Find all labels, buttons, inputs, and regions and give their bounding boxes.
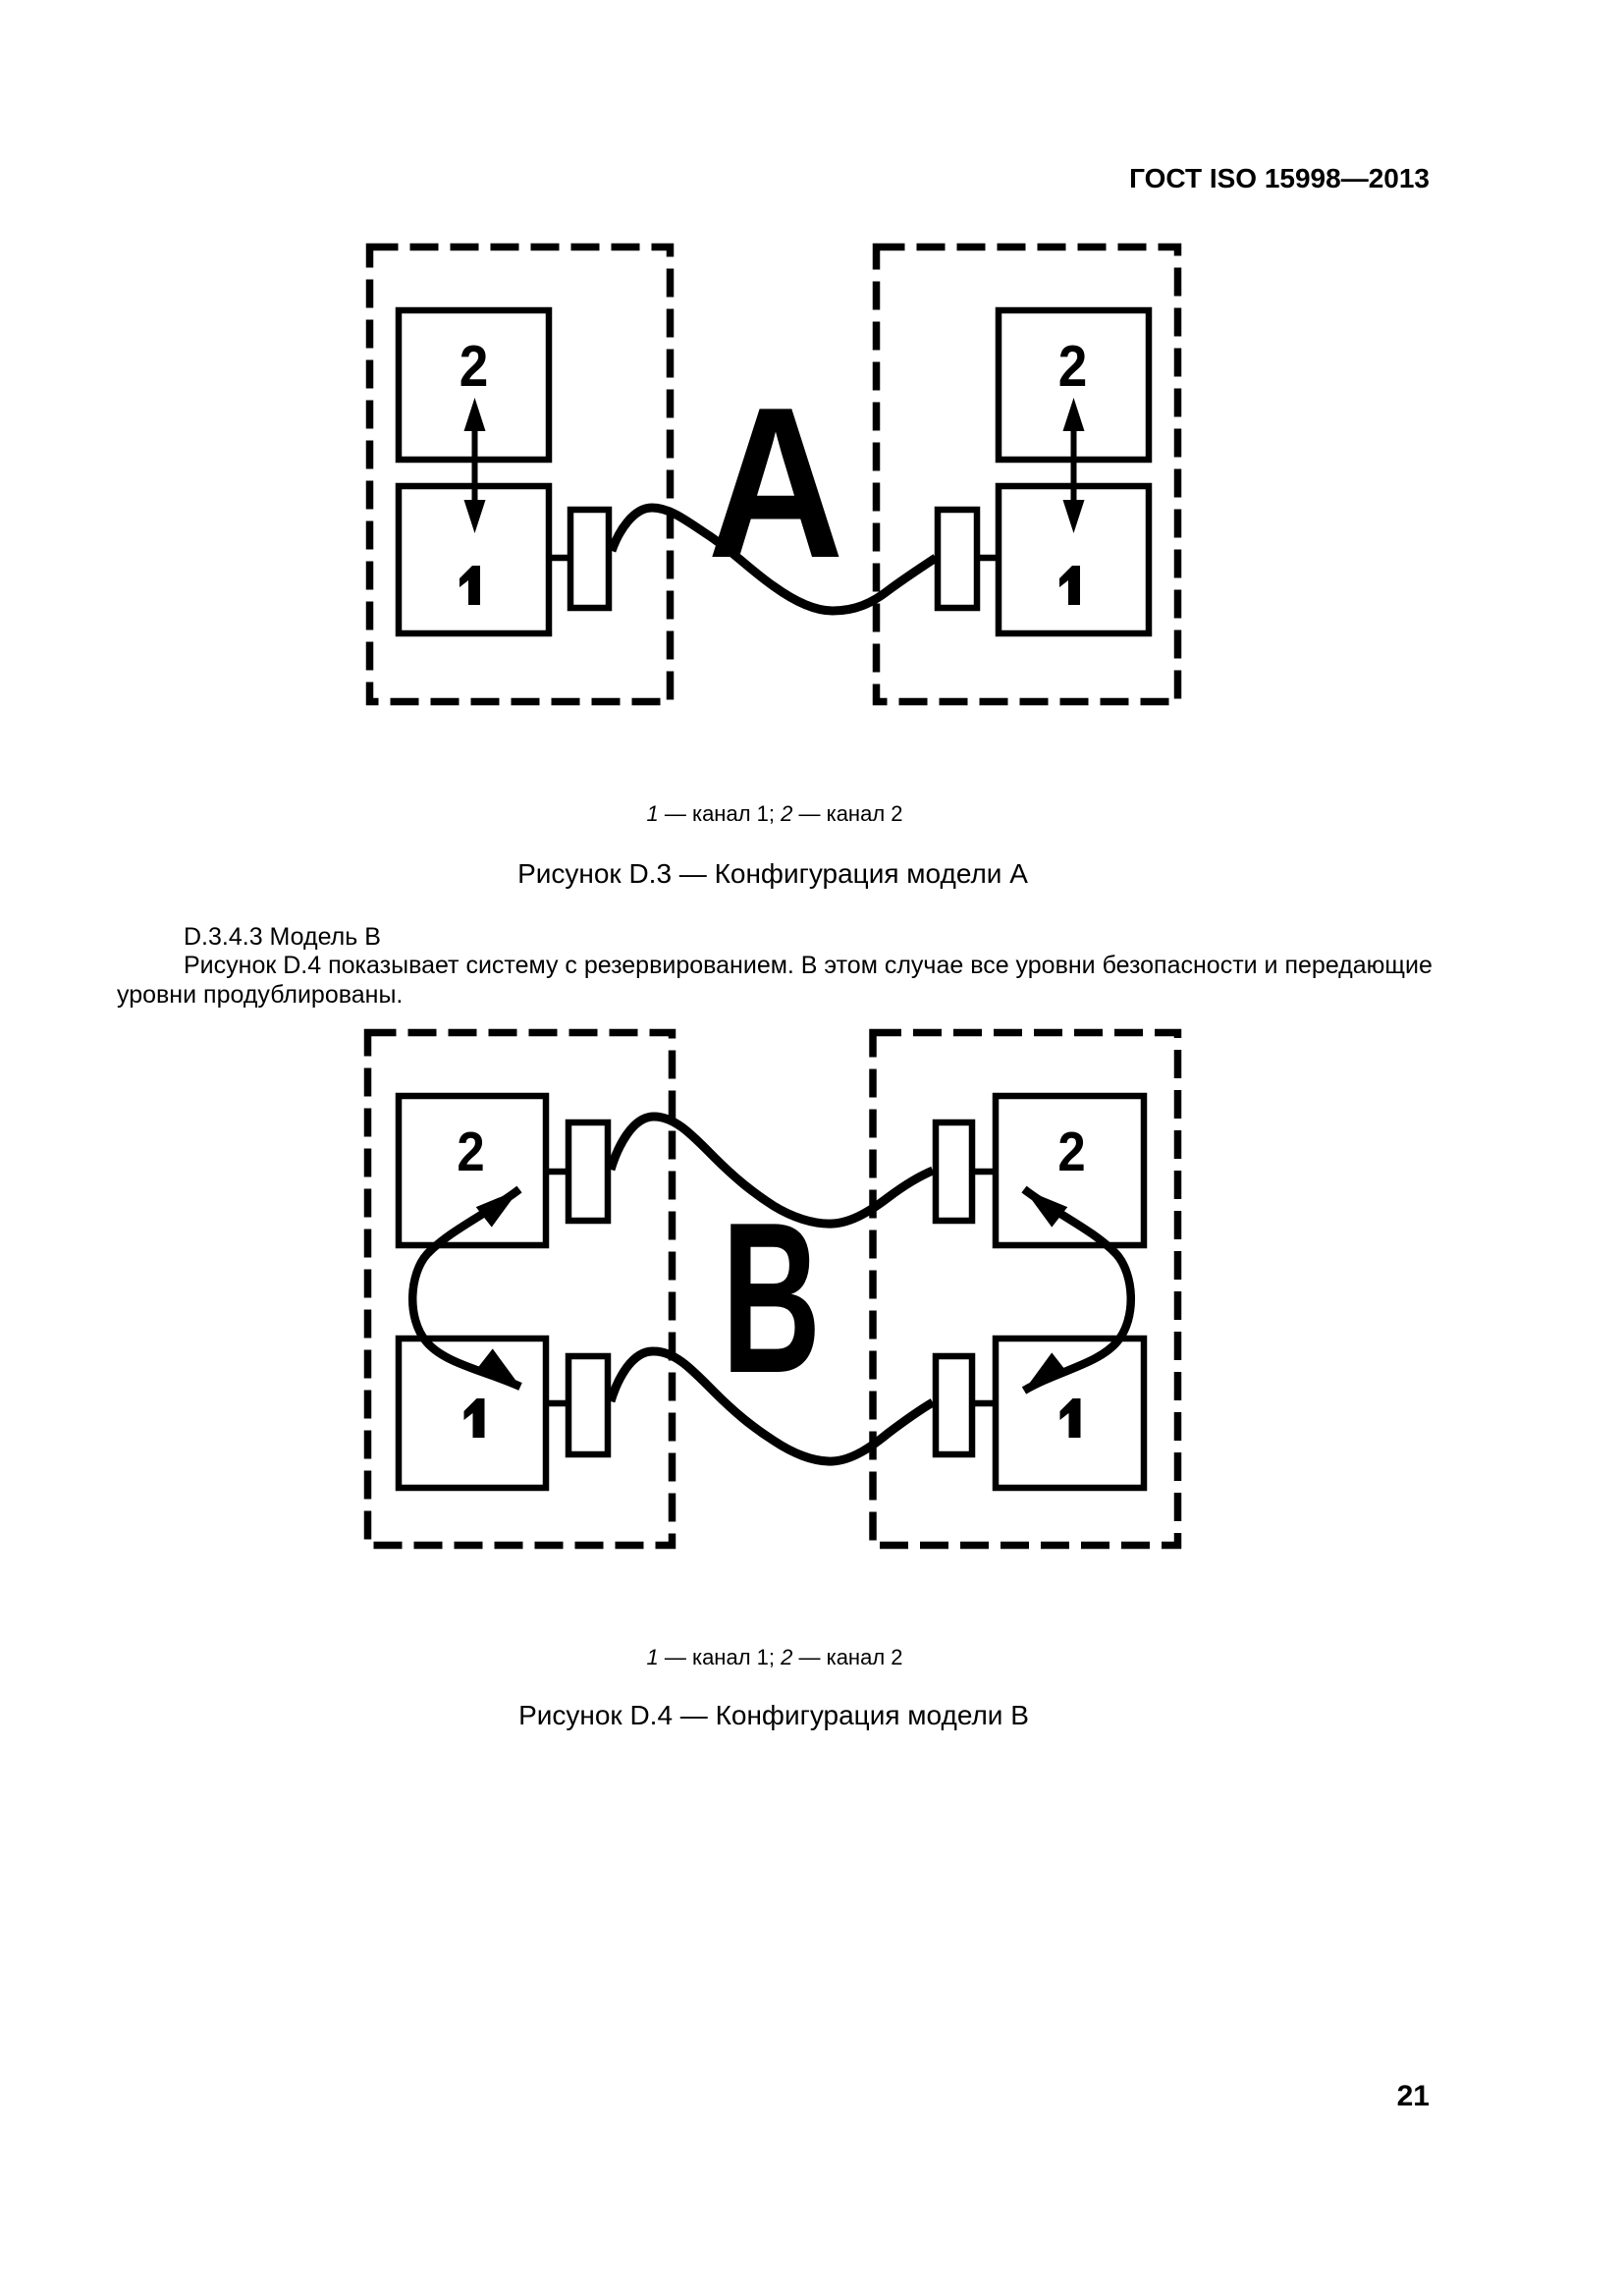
svg-text:21: 21 [1397, 2080, 1430, 2112]
svg-text:A: A [707, 361, 843, 602]
svg-text:2: 2 [457, 1121, 484, 1183]
svg-text:1 — канал 1; 2 — канал 2: 1 — канал 1; 2 — канал 2 [646, 1645, 902, 1669]
svg-text:Рисунок D.4 — Конфигурация мод: Рисунок D.4 — Конфигурация модели В [518, 1700, 1029, 1730]
svg-text:D.3.4.3 Модель В: D.3.4.3 Модель В [184, 923, 381, 951]
svg-text:B: B [722, 1177, 821, 1417]
svg-text:Рисунок D.3 — Конфигурация мод: Рисунок D.3 — Конфигурация модели А [517, 858, 1028, 889]
svg-text:ГОСТ ISO 15998—2013: ГОСТ ISO 15998—2013 [1129, 163, 1430, 193]
svg-text:2: 2 [460, 333, 489, 398]
svg-text:уровни продублированы.: уровни продублированы. [117, 981, 403, 1009]
svg-text:2: 2 [1057, 1121, 1085, 1183]
svg-text:1 — канал 1; 2 — канал 2: 1 — канал 1; 2 — канал 2 [646, 801, 902, 826]
svg-text:Рисунок D.4 показывает систему: Рисунок D.4 показывает систему с резерви… [184, 952, 1433, 979]
svg-text:2: 2 [1058, 333, 1088, 398]
